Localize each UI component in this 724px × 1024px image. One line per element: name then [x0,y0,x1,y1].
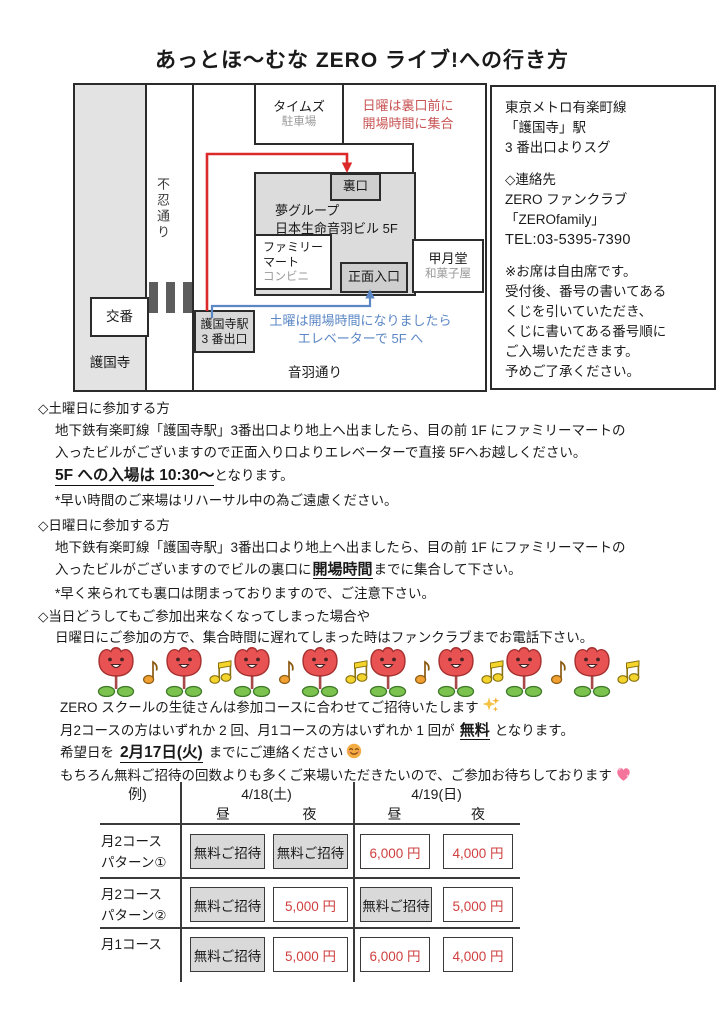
access-map: 不忍通り 護国寺 交番 タイムズ 駐車場 日曜は裏口前に 開場時間に集合 裏口 … [73,83,487,392]
route-arrows [75,85,485,390]
sparkles-icon [482,696,500,714]
blue-route-line [212,298,370,318]
free-highlight: 無料 [460,722,490,740]
smiling-face-icon [346,743,362,759]
sparkling-heart-icon [615,766,632,782]
contact-line: 「ZEROfamily」 [505,210,714,230]
fee-cell: 無料ご招待 [190,937,265,972]
date-header: 4/18(土) [180,784,353,804]
sunday-section: ◇日曜日に参加する方 地下鉄有楽町線「護国寺駅」3番出口より地上へ出ましたら、目… [38,515,626,605]
contact-line: ZERO ファンクラブ [505,190,714,210]
cancellation-section: ◇当日どうしてもご参加出来なくなってしまった場合や 日曜日にご参加の方で、集合時… [38,606,593,648]
section-heading: ◇当日どうしてもご参加出来なくなってしまった場合や [38,606,593,627]
table-rule [100,877,520,879]
fee-cell: 5,000 円 [273,937,348,972]
page-title: あっとほ〜むな ZERO ライブ!への行き方 [0,44,724,74]
time-header: 昼 [180,804,266,824]
seating-note: ※お席は自由席です。 [505,262,714,282]
row-label: 月2コース パターン① [101,831,166,873]
seating-note: 予めご了承ください。 [505,362,714,382]
seating-note: ご入場いただきます。 [505,342,714,362]
fee-cell: 4,000 円 [443,834,513,869]
seating-note: くじに書いてある番号順に [505,322,714,342]
access-line: 東京メトロ有楽町線 [505,98,714,118]
fee-cell: 無料ご招待 [360,887,432,922]
flyer-page: あっとほ〜むな ZERO ライブ!への行き方 不忍通り 護国寺 交番 タイムズ … [0,0,724,1024]
red-arrowhead-icon [342,163,352,174]
contact-tel: TEL:03-5395-7390 [505,230,714,250]
time-header: 夜 [436,804,520,824]
table-rule [100,927,520,929]
date-header: 4/19(日) [353,784,520,804]
table-corner-label: 例) [95,784,180,804]
tulip-divider [93,645,641,697]
deadline-highlight: 2月17日(火) [120,744,203,763]
seating-note: くじを引いていただき、 [505,302,714,322]
row-label: 月2コース パターン② [101,884,166,926]
row-label: 月1コース [101,934,162,955]
section-heading: ◇土曜日に参加する方 [38,398,626,420]
access-line: 「護国寺」駅 [505,118,714,138]
info-panel: 東京メトロ有楽町線 「護国寺」駅 3 番出口よりスグ ◇連絡先 ZERO ファン… [490,85,716,390]
section-heading: ◇日曜日に参加する方 [38,515,626,537]
fee-cell: 5,000 円 [273,887,348,922]
blue-arrowhead-icon [365,289,374,299]
fee-cell: 6,000 円 [360,937,430,972]
time-header: 夜 [266,804,353,824]
fee-cell: 5,000 円 [443,887,513,922]
red-route-line [207,154,347,311]
access-line: 3 番出口よりスグ [505,138,714,158]
seating-note: 受付後、番号の書いてある [505,282,714,302]
fee-cell: 4,000 円 [443,937,513,972]
contact-heading: ◇連絡先 [505,170,714,190]
entry-time-highlight: 5F への入場は 10:30〜 [55,467,214,486]
fee-cell: 無料ご招待 [190,887,265,922]
fee-cell: 無料ご招待 [190,834,265,869]
fee-table: 例) 4/18(土) 4/19(日) 昼 夜 昼 夜 月2コース パターン① 無… [95,782,525,987]
time-header: 昼 [353,804,436,824]
fee-cell: 6,000 円 [360,834,430,869]
opening-time-highlight: 開場時間 [313,561,373,579]
fee-cell: 無料ご招待 [273,834,348,869]
invitation-section: ZERO スクールの生徒さんは参加コースに合わせてご招待いたします 月2コースの… [60,696,632,787]
saturday-section: ◇土曜日に参加する方 地下鉄有楽町線「護国寺駅」3番出口より地上へ出ましたら、目… [38,398,626,512]
